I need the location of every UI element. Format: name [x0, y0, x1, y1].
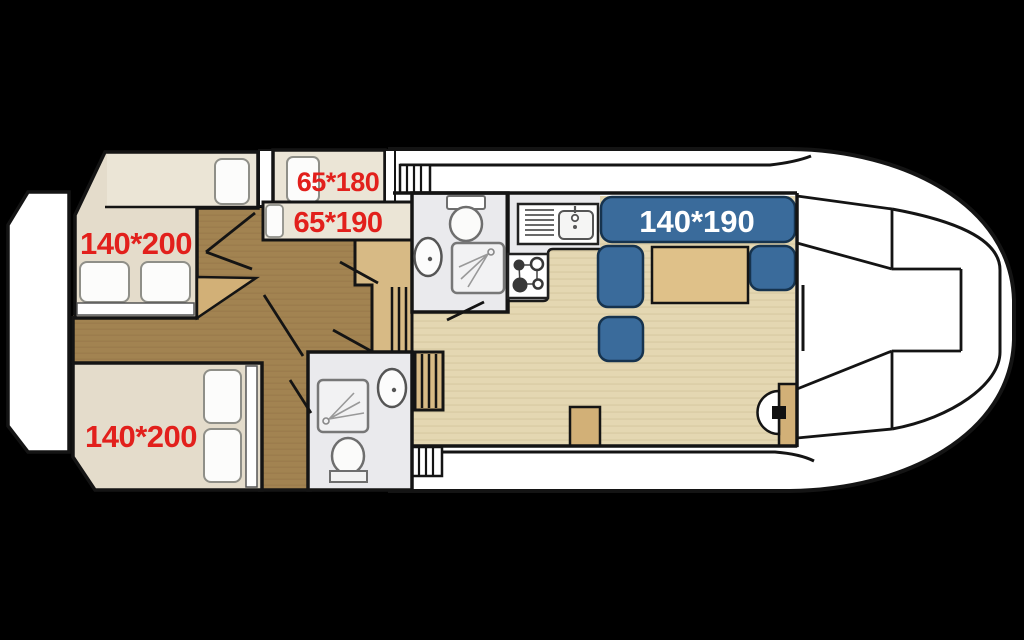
burner — [531, 258, 543, 270]
burner — [513, 278, 528, 293]
bed-size-label-salon-bench: 140*190 — [639, 204, 755, 239]
salon-seat-right — [750, 246, 795, 290]
salon-table — [652, 247, 748, 303]
sink-drain — [392, 388, 396, 392]
faucet-base — [572, 215, 578, 221]
bed-pillow-icon — [204, 429, 241, 482]
bed-shelf — [77, 303, 194, 315]
salon-seat-single — [599, 317, 643, 361]
bed-shelf — [246, 366, 257, 487]
sink-drain — [428, 257, 432, 261]
sink-icon — [415, 238, 442, 276]
sink-icon — [378, 369, 406, 407]
salon-seat-left — [598, 246, 643, 307]
steering-hub — [772, 406, 786, 419]
bed-pillow-icon — [141, 262, 190, 302]
wall-segment — [385, 150, 395, 204]
shower-icon — [452, 243, 504, 293]
bed-pillow-icon — [215, 159, 249, 204]
burner — [534, 280, 543, 289]
toilet-icon — [450, 207, 482, 241]
floorplan-canvas: 140*200 140*200 65*180 65*190 140*190 — [0, 0, 1024, 640]
bathroom-aft — [308, 352, 412, 490]
salon-cabinet — [570, 407, 600, 446]
bed-pillow-icon — [80, 262, 129, 302]
bed-pillow-icon — [204, 370, 241, 423]
sink-drain — [573, 225, 577, 229]
bed-size-label-bunk-bottom: 65*190 — [294, 207, 383, 239]
hallway-floor — [258, 363, 312, 490]
bed-pillow-icon — [266, 205, 283, 237]
burner — [514, 260, 525, 271]
wall-segment — [259, 150, 273, 206]
swim-platform — [8, 192, 69, 452]
toilet-base — [330, 471, 367, 482]
bed-size-label-aft-bottom: 140*200 — [85, 419, 197, 454]
bed-size-label-aft-top: 140*200 — [80, 226, 192, 261]
boat-floorplan: 140*200 140*200 65*180 65*190 140*190 — [0, 0, 1024, 640]
toilet-icon — [332, 438, 364, 474]
bed-size-label-bunk-top: 65*180 — [297, 167, 380, 197]
